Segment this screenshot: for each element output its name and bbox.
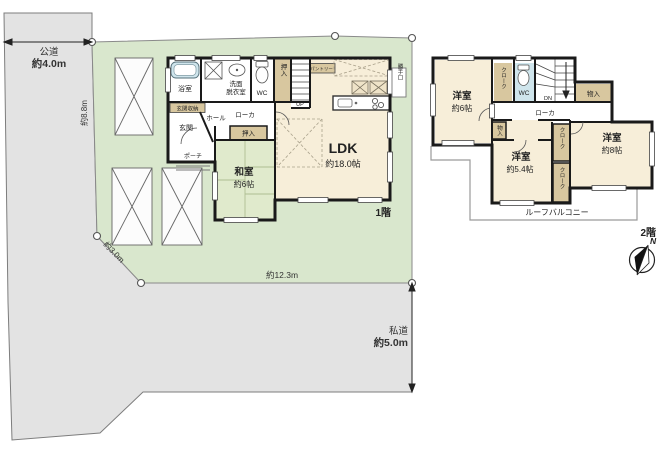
storage-side-label: 物入: [496, 124, 503, 137]
floorplan-svg: 公道 約4.0m 私道 約5.0m 約8.8m 約3.0m 約12.3m: [0, 0, 660, 450]
parking-stall-2: [112, 168, 152, 245]
backdoor-label: 勝手口: [397, 63, 404, 82]
toilet-1f-icon: [256, 62, 268, 84]
stairs-dn-label: DN: [544, 96, 552, 102]
stairs-2f: [536, 58, 575, 102]
hall-label: ホール: [206, 114, 226, 122]
parking-stall-1: [115, 58, 153, 135]
room-ldk-lower: [275, 102, 310, 200]
public-road-label: 公道: [39, 46, 59, 58]
genkan-storage-label: 玄関収納: [176, 105, 199, 113]
west-dimension: 約8.8m: [79, 100, 89, 126]
kitchen-counter: [333, 96, 390, 110]
west-room-size: 約6帖: [452, 103, 472, 113]
roka-1f-label: ローカ: [235, 111, 255, 119]
cloak-mid-label: クローク: [559, 127, 566, 150]
east-room-label: 洋室: [602, 132, 622, 144]
genkan-label: 玄関: [179, 123, 193, 132]
public-road-size: 約4.0m: [32, 57, 66, 70]
washitsu-size: 約6帖: [234, 179, 254, 189]
floor2-plan: 洋室 約6帖 クローク WC DN 物入 ローカ 物入 洋室 約5.4帖 クロー…: [431, 56, 657, 240]
ldk-label: LDK: [329, 140, 358, 156]
private-road-label: 私道: [389, 325, 409, 337]
east-room-size: 約8帖: [602, 145, 622, 155]
private-road-size: 約5.0m: [374, 336, 408, 349]
kitchen-sink: [338, 99, 352, 107]
porch-label: ポーチ: [184, 152, 202, 160]
roka-2f-label: ローカ: [535, 109, 555, 117]
pantry-label: パントリー: [310, 67, 333, 72]
west-room-label: 洋室: [452, 90, 472, 102]
wc-1f-label: WC: [257, 90, 268, 97]
balcony-label: ルーフバルコニー: [525, 208, 588, 217]
toilet-2f-icon: [518, 65, 529, 86]
middle-room-label: 洋室: [511, 151, 531, 163]
cloak-bottom-label: クローク: [559, 167, 566, 190]
ldk-size: 約18.0帖: [325, 158, 361, 169]
floor1-label: 1階: [375, 206, 391, 219]
wc-2f-label: WC: [519, 90, 530, 97]
bathtub-icon: [171, 62, 199, 78]
floorplan-image: 公道 約4.0m 私道 約5.0m 約8.8m 約3.0m 約12.3m: [0, 0, 660, 450]
wash-label-2: 脱衣室: [226, 87, 246, 96]
south-dimension: 約12.3m: [266, 270, 298, 280]
stairs-up-label: UP: [296, 102, 304, 108]
washing-machine-icon: [205, 62, 222, 79]
compass-north-label: N: [650, 236, 657, 246]
stairs-1f: [291, 58, 310, 108]
sink-icon: [229, 64, 245, 76]
oshiire-side-label: 押入: [242, 129, 256, 138]
bath-label: 浴室: [178, 84, 192, 93]
wash-label-1: 洗面: [230, 79, 244, 88]
cloak-top-label: クローク: [500, 67, 507, 90]
storage-top-label: 物入: [587, 89, 601, 98]
middle-room-size: 約5.4帖: [506, 164, 533, 174]
room-east-8: [570, 122, 652, 188]
parking-stall-3: [162, 168, 202, 245]
washitsu-label: 和室: [233, 166, 254, 178]
compass-icon: N: [630, 236, 658, 275]
